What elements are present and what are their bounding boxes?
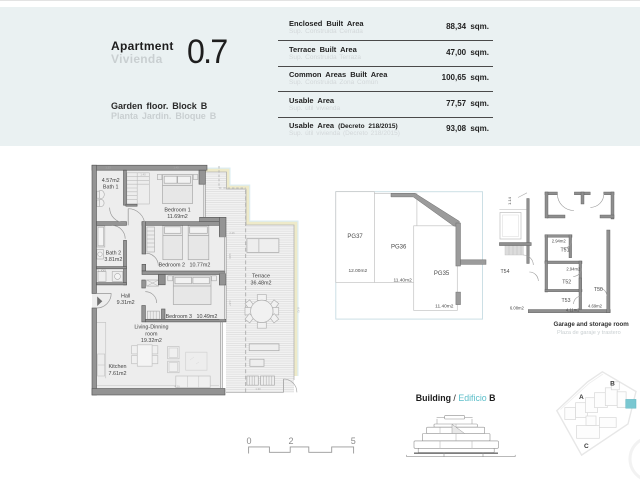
- svg-text:1.30: 1.30: [255, 387, 261, 391]
- svg-text:2: 2: [288, 436, 293, 446]
- svg-text:2.26: 2.26: [229, 231, 235, 235]
- svg-text:4.57m2: 4.57m2: [102, 178, 120, 184]
- svg-text:T51: T51: [561, 248, 570, 254]
- svg-text:Plaza de garaje y trastero: Plaza de garaje y trastero: [557, 330, 621, 336]
- svg-text:4.11m2: 4.11m2: [566, 308, 580, 313]
- svg-text:9.31m2: 9.31m2: [117, 300, 135, 306]
- svg-text:PG36: PG36: [391, 245, 407, 251]
- svg-text:4.69m2: 4.69m2: [588, 304, 603, 309]
- svg-text:4.20: 4.20: [174, 384, 180, 388]
- svg-text:2.94m2: 2.94m2: [552, 239, 567, 244]
- svg-text:3.00: 3.00: [228, 253, 232, 259]
- svg-text:0: 0: [246, 436, 251, 446]
- svg-text:19.32m2: 19.32m2: [141, 338, 162, 344]
- svg-text:3.81m2: 3.81m2: [104, 257, 122, 263]
- svg-text:CL. XXX: CL. XXX: [96, 268, 106, 272]
- svg-text:11.69m2: 11.69m2: [167, 214, 188, 220]
- svg-text:1.23: 1.23: [105, 165, 111, 169]
- svg-text:Hall: Hall: [121, 294, 130, 300]
- svg-text:7.61m2: 7.61m2: [109, 371, 127, 377]
- svg-text:1.49: 1.49: [173, 165, 179, 169]
- svg-text:T50: T50: [594, 287, 603, 293]
- svg-text:1.14: 1.14: [507, 196, 512, 205]
- svg-text:5: 5: [351, 436, 356, 446]
- svg-text:Garage and storage room: Garage and storage room: [554, 321, 630, 328]
- svg-text:Bedroom 2 10.77m2: Bedroom 2 10.77m2: [159, 263, 211, 269]
- svg-text:Bath 2: Bath 2: [106, 250, 122, 256]
- svg-text:Kitchen: Kitchen: [109, 364, 127, 370]
- svg-text:T53: T53: [562, 298, 571, 304]
- svg-text:Bedroom 3 10.49m2: Bedroom 3 10.49m2: [166, 314, 218, 320]
- svg-text:PG37: PG37: [347, 234, 363, 240]
- svg-text:B: B: [610, 381, 615, 388]
- svg-text:11.40m2: 11.40m2: [435, 304, 454, 310]
- svg-text:1.40: 1.40: [140, 172, 146, 176]
- svg-text:Bath 1: Bath 1: [103, 185, 119, 191]
- svg-text:6.08m2: 6.08m2: [510, 305, 525, 310]
- svg-text:12.00m2: 12.00m2: [348, 268, 367, 274]
- svg-text:Building / Edificio B: Building / Edificio B: [416, 393, 496, 403]
- svg-text:room: room: [145, 331, 158, 337]
- svg-text:PG35: PG35: [434, 271, 450, 277]
- svg-text:Living-Dinning: Living-Dinning: [134, 325, 168, 331]
- svg-text:11.40m2: 11.40m2: [393, 277, 412, 283]
- svg-text:2.94m2: 2.94m2: [566, 267, 581, 272]
- svg-text:Terrace: Terrace: [252, 274, 270, 280]
- svg-text:T54: T54: [501, 269, 510, 275]
- svg-text:6.42: 6.42: [297, 307, 301, 313]
- svg-text:36.48m2: 36.48m2: [251, 280, 272, 286]
- svg-text:T52: T52: [562, 280, 571, 286]
- svg-text:Bedroom 1: Bedroom 1: [164, 207, 190, 213]
- svg-text:2.87: 2.87: [228, 300, 232, 306]
- svg-text:C: C: [584, 443, 589, 450]
- svg-text:A: A: [579, 394, 584, 401]
